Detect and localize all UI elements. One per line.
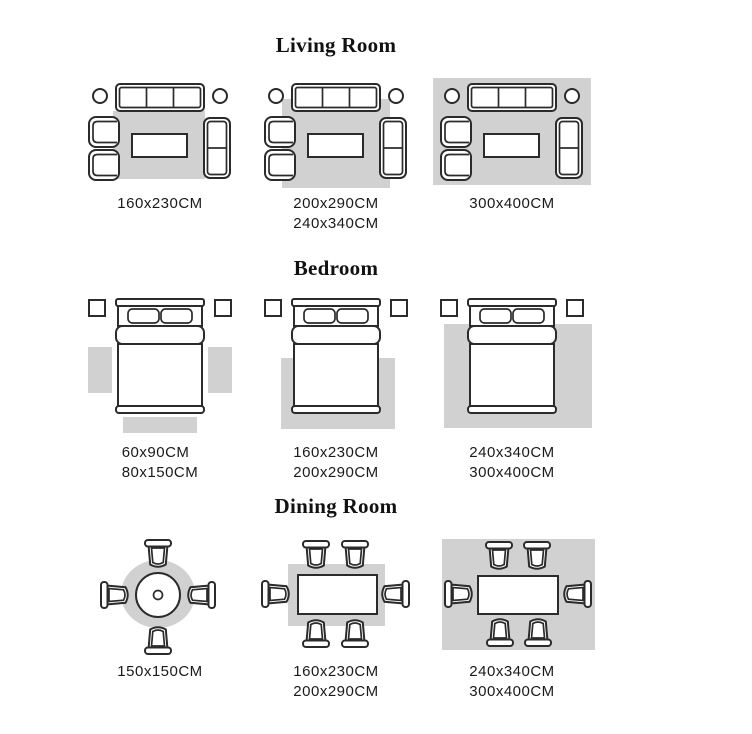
dining-room-tile-medium: 160x230CM 200x290CM (248, 528, 424, 706)
section-bedroom: Bedroom 60x90CM 80x150CM (72, 238, 600, 487)
dining-room-diagram-160x230 (248, 528, 424, 658)
section-title-dining-room: Dining Room (72, 494, 600, 518)
size-label-line-2: 200x290CM (293, 463, 378, 483)
dining-chair-icon (262, 581, 289, 607)
table-center-icon (154, 591, 163, 600)
living-room-tile-small: 160x230CM (72, 70, 248, 238)
size-label-line-1: 160x230CM (293, 443, 378, 463)
size-label-line-2: 80x150CM (122, 463, 199, 483)
dining-room-tile-large: 240x340CM 300x400CM (424, 528, 600, 706)
rug-shape (208, 347, 232, 393)
bedroom-tile-runners: 60x90CM 80x150CM (72, 289, 248, 487)
bedroom-tiles-row: 60x90CM 80x150CM 160x230CM 200x290CM (72, 289, 600, 487)
living-room-diagram-300x400 (424, 70, 600, 190)
bedroom-diagram-160x230 (248, 289, 424, 439)
living-room-diagram-200x290 (248, 70, 424, 190)
size-label-line-1: 240x340CM (469, 443, 554, 463)
rug-size-guide: Living Room 160x230CM (0, 0, 752, 734)
dining-chair-icon (382, 581, 409, 607)
dining-room-diagram-240x340 (424, 528, 600, 658)
living-room-tile-large: 300x400CM (424, 70, 600, 238)
size-label: 240x340CM 300x400CM (424, 662, 600, 706)
dining-room-diagram-150x150 (72, 528, 248, 658)
living-room-tile-medium: 200x290CM 240x340CM (248, 70, 424, 238)
living-room-diagram-160x230 (72, 70, 248, 190)
living-room-tiles-row: 160x230CM 200x290CM 240x340CM (72, 70, 600, 238)
rug-shape (88, 347, 112, 393)
size-label-line-2: 300x400CM (469, 682, 554, 702)
size-label: 300x400CM (424, 194, 600, 238)
rug-shape (123, 417, 197, 433)
rect-dining-table-icon (478, 576, 558, 614)
size-label-line-2 (469, 214, 554, 234)
size-label: 200x290CM 240x340CM (248, 194, 424, 238)
section-dining-room: Dining Room (72, 487, 600, 706)
size-label: 160x230CM 200x290CM (248, 443, 424, 487)
section-title-bedroom: Bedroom (72, 256, 600, 280)
section-living-room: Living Room 160x230CM (72, 0, 600, 238)
bedroom-tile-large: 240x340CM 300x400CM (424, 289, 600, 487)
size-label-line-2: 300x400CM (469, 463, 554, 483)
size-label-line-2: 200x290CM (293, 682, 378, 702)
dining-room-tile-round: 150x150CM (72, 528, 248, 706)
size-label-line-1: 160x230CM (293, 662, 378, 682)
size-label: 160x230CM (72, 194, 248, 238)
size-label-line-1: 60x90CM (122, 443, 199, 463)
bedroom-tile-medium: 160x230CM 200x290CM (248, 289, 424, 487)
size-label: 150x150CM (72, 662, 248, 706)
size-label: 60x90CM 80x150CM (72, 443, 248, 487)
size-label-line-2 (117, 214, 202, 234)
dining-room-tiles-row: 150x150CM (72, 528, 600, 706)
rect-dining-table-icon (298, 575, 377, 614)
size-label-line-1: 200x290CM (293, 194, 378, 214)
size-label-line-1: 150x150CM (117, 662, 202, 682)
guide-content-column: Living Room 160x230CM (72, 0, 600, 706)
size-label-line-2: 240x340CM (293, 214, 378, 234)
size-label: 160x230CM 200x290CM (248, 662, 424, 706)
bedroom-diagram-runners (72, 289, 248, 439)
size-label-line-1: 240x340CM (469, 662, 554, 682)
section-title-living-room: Living Room (72, 33, 600, 57)
size-label-line-1: 160x230CM (117, 194, 202, 214)
dining-chair-icon (342, 541, 368, 568)
dining-chair-icon (303, 541, 329, 568)
size-label: 240x340CM 300x400CM (424, 443, 600, 487)
dining-chair-icon (145, 627, 171, 654)
size-label-line-2 (117, 682, 202, 702)
bedroom-diagram-240x340 (424, 289, 600, 439)
size-label-line-1: 300x400CM (469, 194, 554, 214)
